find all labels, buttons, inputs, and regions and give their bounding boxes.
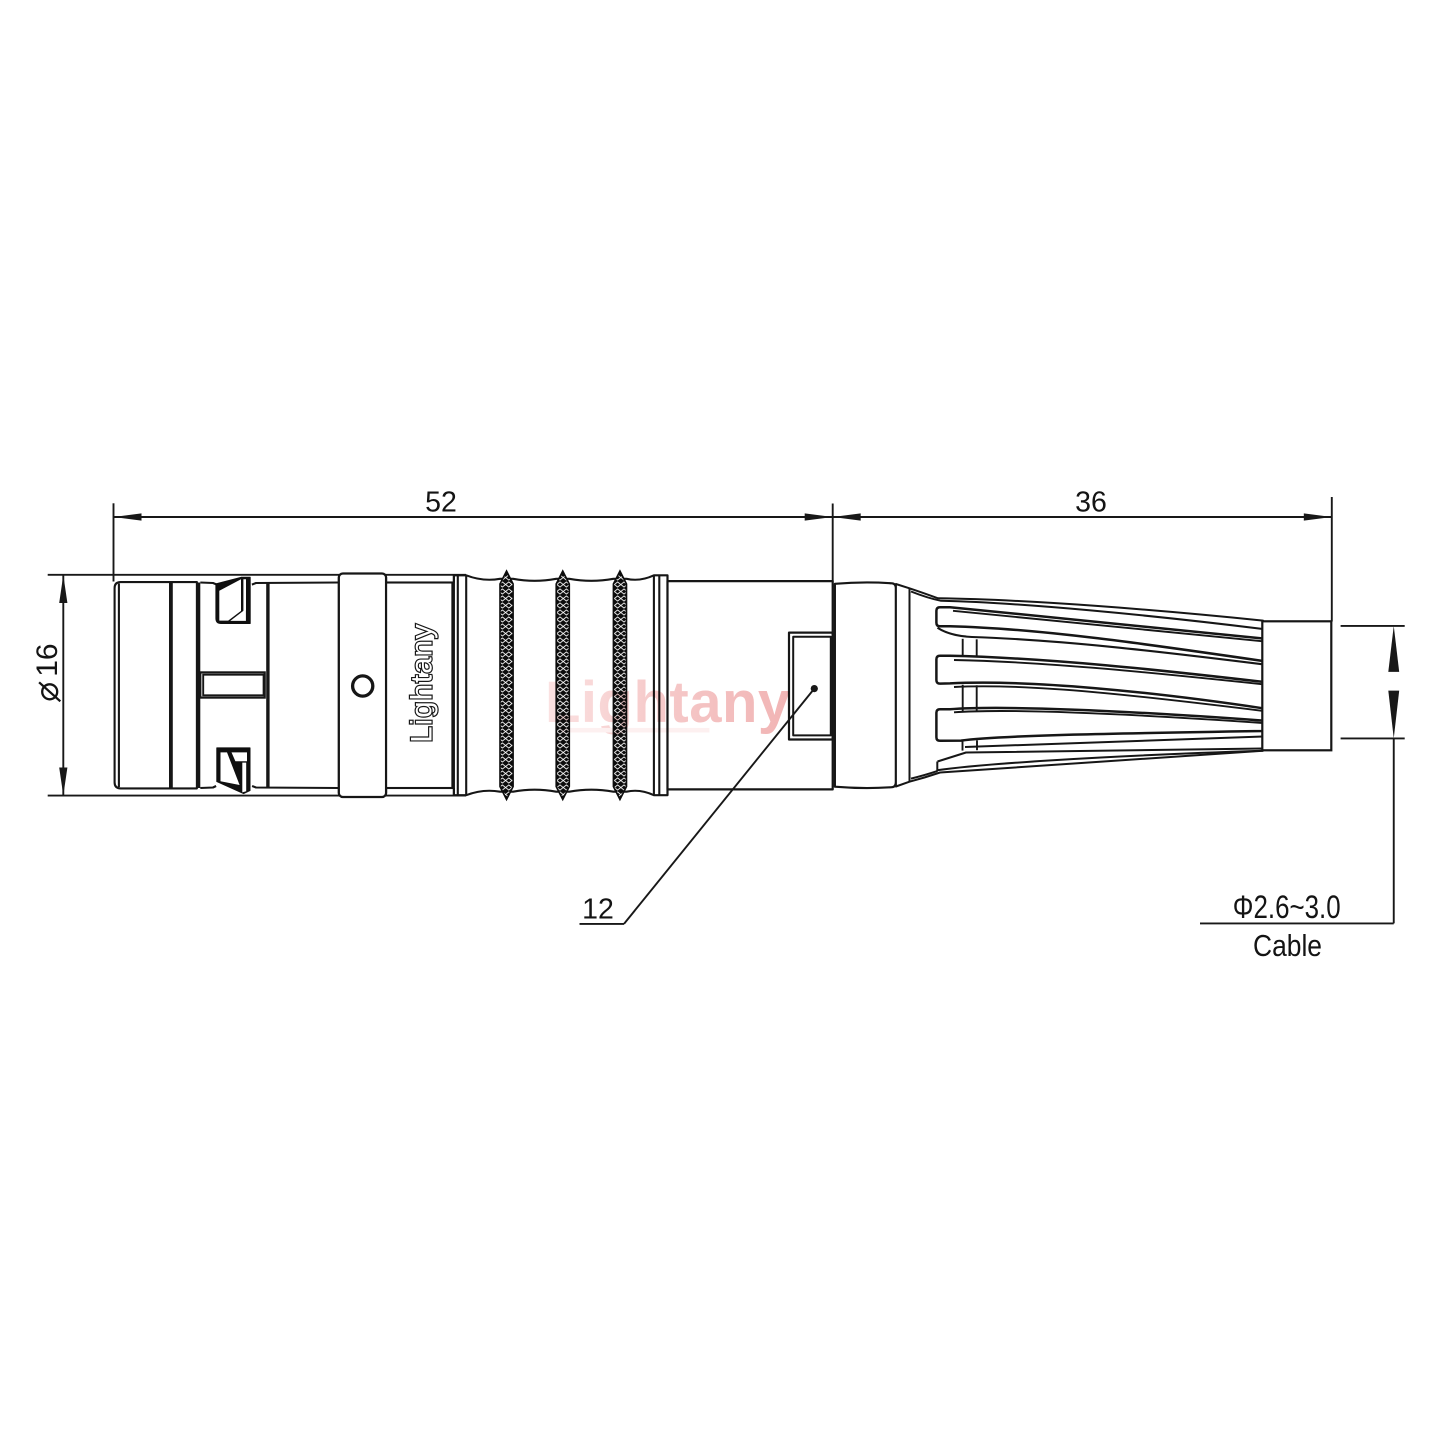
svg-text:Lightany: Lightany	[545, 670, 791, 735]
svg-text:36: 36	[1075, 487, 1107, 519]
svg-text:16: 16	[31, 643, 64, 676]
svg-text:Lightany: Lightany	[406, 623, 439, 743]
svg-text:52: 52	[425, 487, 457, 519]
svg-text:Cable: Cable	[1253, 928, 1322, 963]
svg-text:Φ2.6~3.0: Φ2.6~3.0	[1233, 889, 1341, 925]
svg-text:12: 12	[582, 894, 614, 926]
